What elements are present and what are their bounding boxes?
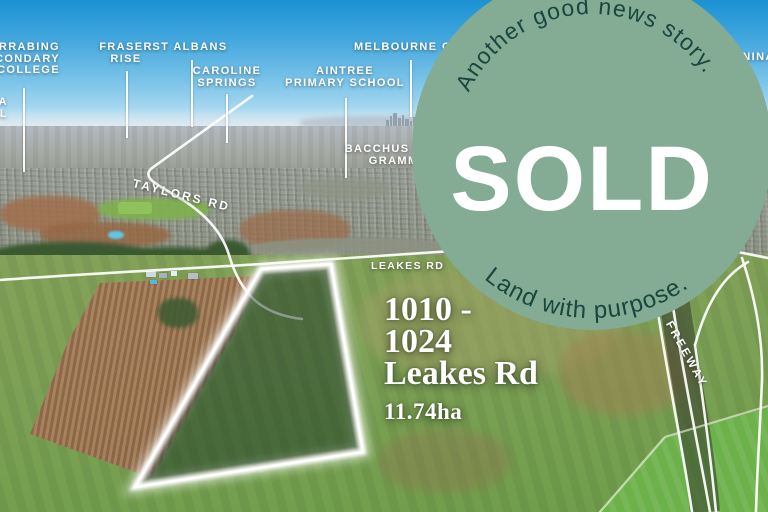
label-aintree-primary: AINTREE PRIMARY SCHOOL xyxy=(265,66,425,89)
pointer-line-college xyxy=(23,88,25,172)
label-melbourne-cbd: MELBOURNE CBD xyxy=(332,42,492,54)
label-line: COLLEGE xyxy=(0,65,60,77)
farm-building xyxy=(188,273,198,279)
label-line: GANINA xyxy=(723,52,768,64)
farm-building xyxy=(159,273,167,278)
label-bacchus-marsh-grammar: BACCHUS MARSH GRAMMAR xyxy=(323,144,483,167)
label-st-albans: ST ALBANS xyxy=(130,42,250,54)
sports-oval xyxy=(118,202,152,214)
label-line: ST ALBANS xyxy=(130,42,250,54)
pond xyxy=(108,231,124,239)
road-label-leakes-rd: LEAKES RD xyxy=(371,260,444,272)
farm-building xyxy=(146,271,156,277)
pointer-line-fraser-rise xyxy=(126,71,128,138)
property-headline: 1010 - 1024 Leakes Rd 11.74ha xyxy=(384,294,538,425)
land-area: 11.74ha xyxy=(384,399,538,425)
farm-pool xyxy=(150,280,157,284)
label-secondary-college: ARRABING ECONDARY COLLEGE xyxy=(0,42,60,77)
label-line: AINTREE xyxy=(265,66,425,78)
label-line: ARRABING xyxy=(0,42,60,54)
dirt-patch xyxy=(560,330,690,415)
aerial-photo-listing: ARRABING ECONDARY COLLEGE A OL FRASER RI… xyxy=(0,0,768,512)
label-line: A xyxy=(0,97,8,109)
label-line: MELBOURNE CBD xyxy=(332,42,492,54)
label-line: PRIMARY SCHOOL xyxy=(265,78,425,90)
tree-clump xyxy=(158,298,198,328)
suburb-patch xyxy=(300,178,390,200)
dirt-patch xyxy=(380,430,510,492)
address-line-2: 1024 xyxy=(384,326,538,358)
label-left-edge-fragment: A OL xyxy=(0,97,8,120)
farm-building xyxy=(171,271,177,276)
label-line: RISE xyxy=(66,54,186,66)
label-line: GRAMMAR xyxy=(323,156,483,168)
label-truganina-fragment: GANINA xyxy=(723,52,768,64)
pointer-line-caroline-springs xyxy=(226,94,228,143)
address-line-3: Leakes Rd xyxy=(384,358,538,390)
address-line-1: 1010 - xyxy=(384,294,538,326)
label-line: BACCHUS MARSH xyxy=(323,144,483,156)
label-line: OL xyxy=(0,109,8,121)
